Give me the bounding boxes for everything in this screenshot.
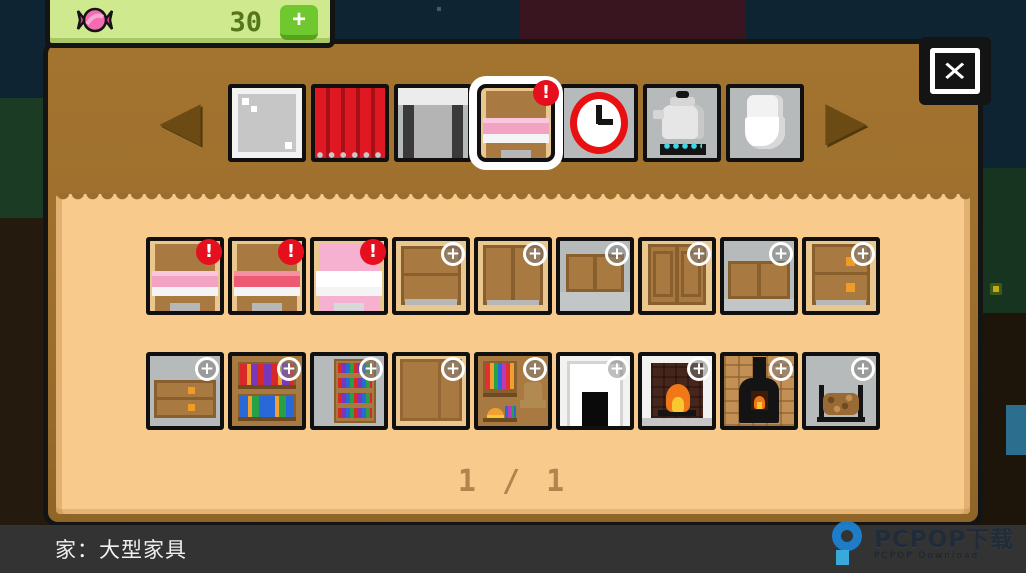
watermark-brand: PCPOP下载 <box>874 529 1014 551</box>
item-bed-white-pink[interactable]: ! <box>310 237 388 315</box>
item-wardrobe-paneled[interactable]: + <box>638 237 716 315</box>
add-badge: + <box>851 357 875 381</box>
add-badge: + <box>523 357 547 381</box>
watermark: PCPOP下载 PCPOP Download <box>832 521 1014 567</box>
kettle-icon <box>647 88 717 158</box>
add-badge: + <box>441 242 465 266</box>
new-badge: ! <box>278 239 304 265</box>
add-badge: + <box>851 242 875 266</box>
item-drawer-chest[interactable]: + <box>802 237 880 315</box>
prev-category-arrow[interactable]: ◀ <box>154 96 206 148</box>
item-tall-bookshelf[interactable]: + <box>310 352 388 430</box>
category-tab-bar: ! <box>228 84 804 162</box>
toilet-icon <box>730 88 800 158</box>
new-badge: ! <box>196 239 222 265</box>
background-pond <box>1006 405 1026 455</box>
add-badge: + <box>605 357 629 381</box>
currency-count: 30 <box>229 3 262 38</box>
item-bed-pink[interactable]: ! <box>146 237 224 315</box>
background-flower <box>990 283 1002 295</box>
background-star <box>437 7 441 11</box>
furniture-shop-panel: ◀ ▶ ! <box>48 44 978 522</box>
item-log-rack[interactable]: + <box>802 352 880 430</box>
new-badge: ! <box>360 239 386 265</box>
add-badge: + <box>687 357 711 381</box>
item-fireplace-mantel[interactable]: + <box>556 352 634 430</box>
add-badge: + <box>769 357 793 381</box>
category-label: 家：大型家具 <box>55 534 187 564</box>
item-wall-cabinet-wide[interactable]: + <box>720 237 798 315</box>
tab-clock[interactable] <box>560 84 638 162</box>
item-wardrobe-two-door[interactable]: + <box>474 237 552 315</box>
add-badge: + <box>687 242 711 266</box>
add-badge: + <box>441 357 465 381</box>
background-ground-left <box>0 218 50 525</box>
item-open-closet[interactable]: + <box>474 352 552 430</box>
tab-kettle[interactable] <box>643 84 721 162</box>
background-building <box>520 0 746 46</box>
tab-toilet[interactable] <box>726 84 804 162</box>
add-badge: + <box>195 357 219 381</box>
item-bed-red[interactable]: ! <box>228 237 306 315</box>
scallop-edge <box>56 193 970 203</box>
pcpop-logo-icon <box>832 521 868 567</box>
close-button[interactable]: ✕ <box>919 37 991 105</box>
item-bookshelf[interactable]: + <box>228 352 306 430</box>
add-badge: + <box>769 242 793 266</box>
add-badge: + <box>605 242 629 266</box>
item-low-dresser[interactable]: + <box>146 352 224 430</box>
watermark-text: PCPOP下载 PCPOP Download <box>874 521 1014 561</box>
currency-panel: 30 + <box>45 0 335 48</box>
items-row-2: + + + + + + + + <box>146 352 880 430</box>
window-glass-icon <box>232 88 302 158</box>
item-fireplace-lit[interactable]: + <box>638 352 716 430</box>
page-indicator: 1 / 1 <box>48 464 978 499</box>
curtain-icon <box>315 88 385 158</box>
add-badge: + <box>359 357 383 381</box>
items-row-1: ! ! ! + + + + + <box>146 237 880 315</box>
tab-window-glass[interactable] <box>228 84 306 162</box>
tab-curtain[interactable] <box>311 84 389 162</box>
close-icon: ✕ <box>942 55 969 88</box>
item-plain-wardrobe[interactable]: + <box>392 352 470 430</box>
next-category-arrow[interactable]: ▶ <box>820 96 872 148</box>
item-dresser[interactable]: + <box>392 237 470 315</box>
tab-door[interactable] <box>394 84 472 162</box>
tab-bed-selected[interactable]: ! <box>477 84 555 162</box>
add-badge: + <box>523 242 547 266</box>
background-trees-left <box>0 98 50 218</box>
item-wood-stove[interactable]: + <box>720 352 798 430</box>
candy-icon <box>76 4 114 36</box>
door-icon <box>398 88 468 158</box>
clock-icon <box>564 88 634 158</box>
new-items-badge: ! <box>533 80 559 106</box>
add-badge: + <box>277 357 301 381</box>
close-button-frame: ✕ <box>930 48 980 94</box>
item-wall-cabinet[interactable]: + <box>556 237 634 315</box>
add-currency-button[interactable]: + <box>280 5 318 40</box>
